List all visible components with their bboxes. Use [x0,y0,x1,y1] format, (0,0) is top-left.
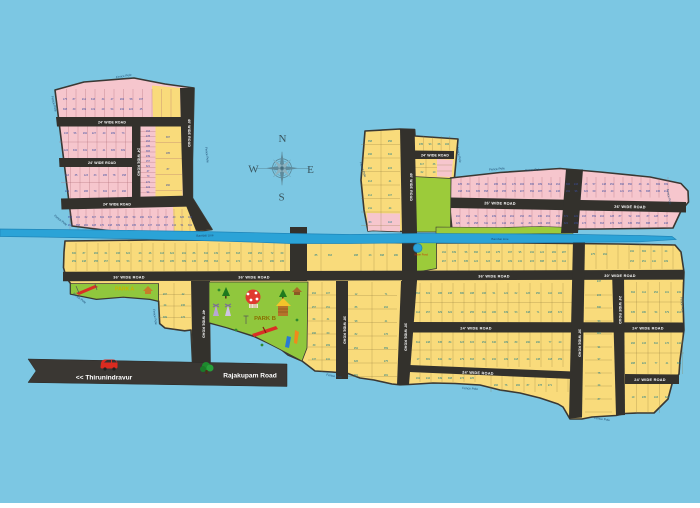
svg-text:388: 388 [540,260,545,263]
svg-text:398: 398 [380,254,385,257]
svg-text:114: 114 [416,311,421,314]
svg-text:346: 346 [492,341,497,344]
svg-text:297: 297 [163,293,168,296]
svg-text:137: 137 [312,358,317,361]
svg-text:282: 282 [552,251,557,254]
svg-text:381: 381 [354,374,359,377]
svg-text:345: 345 [628,222,633,225]
svg-text:225: 225 [458,183,463,186]
svg-text:238: 238 [494,190,499,193]
svg-text:317: 317 [420,163,425,166]
svg-text:191: 191 [566,190,571,193]
svg-text:287: 287 [562,251,567,254]
svg-text:196: 196 [116,252,121,255]
svg-text:158: 158 [122,174,127,177]
svg-text:24' WIDE ROAD: 24' WIDE ROAD [103,202,131,206]
svg-text:335: 335 [631,311,636,314]
svg-text:116: 116 [160,252,165,255]
svg-text:282: 282 [516,384,521,387]
svg-text:264: 264 [466,215,471,218]
svg-text:202: 202 [182,252,187,255]
svg-text:275: 275 [384,360,389,363]
svg-text:152: 152 [556,215,561,218]
svg-text:185: 185 [166,152,171,155]
svg-text:200: 200 [124,216,129,219]
svg-text:121: 121 [620,190,625,193]
svg-text:269: 269 [326,344,331,347]
svg-text:278: 278 [538,384,543,387]
svg-text:176: 176 [384,333,389,336]
svg-text:26' WIDE ROAD: 26' WIDE ROAD [614,205,646,210]
svg-text:210: 210 [456,215,461,218]
svg-text:257: 257 [312,306,317,309]
svg-text:S: S [278,192,284,204]
svg-text:290: 290 [140,216,145,219]
svg-text:232: 232 [677,291,682,294]
svg-text:182: 182 [558,292,563,295]
svg-text:173: 173 [582,222,587,225]
svg-text:109: 109 [664,260,669,263]
svg-text:280: 280 [394,254,399,257]
svg-text:40' WIDE ROAD: 40' WIDE ROAD [409,173,413,201]
svg-text:247: 247 [597,280,602,283]
svg-text:215: 215 [530,260,535,263]
svg-text:241: 241 [326,358,331,361]
svg-text:128: 128 [654,215,659,218]
svg-text:307: 307 [92,216,97,219]
svg-text:136: 136 [656,190,661,193]
svg-text:363: 363 [328,254,333,257]
svg-text:252: 252 [610,183,615,186]
svg-text:274: 274 [236,260,241,263]
svg-text:394: 394 [631,291,636,294]
svg-text:100: 100 [636,215,641,218]
svg-text:250: 250 [536,292,541,295]
svg-text:274: 274 [460,377,465,380]
svg-text:215: 215 [388,167,393,170]
svg-text:315: 315 [470,341,475,344]
svg-text:110: 110 [548,292,553,295]
svg-text:184: 184 [520,183,525,186]
svg-text:257: 257 [426,311,431,314]
svg-text:323: 323 [486,260,491,263]
svg-text:359: 359 [592,215,597,218]
svg-text:308: 308 [448,377,453,380]
svg-text:344: 344 [482,311,487,314]
svg-text:176: 176 [665,342,670,345]
svg-text:236: 236 [181,304,186,307]
svg-text:159: 159 [558,358,563,361]
svg-text:393: 393 [160,260,165,263]
svg-text:324: 324 [170,252,175,255]
svg-text:369: 369 [664,183,669,186]
svg-text:264: 264 [556,183,561,186]
svg-text:326: 326 [180,216,185,219]
svg-text:291: 291 [510,215,515,218]
svg-text:326: 326 [618,222,623,225]
svg-text:176: 176 [181,316,186,319]
svg-text:107: 107 [326,292,331,295]
svg-text:230: 230 [538,215,543,218]
svg-text:212: 212 [82,98,87,101]
svg-text:Bambai Line: Bambai Line [491,237,508,241]
svg-text:192: 192 [630,250,635,253]
svg-text:184: 184 [445,143,450,146]
svg-text:191: 191 [416,377,421,380]
svg-text:337: 337 [108,216,113,219]
svg-text:145: 145 [192,260,197,263]
svg-text:170: 170 [512,183,517,186]
svg-text:380: 380 [460,292,465,295]
svg-text:153: 153 [630,260,635,263]
svg-text:262: 262 [603,253,608,256]
svg-text:24' WIDE ROAD: 24' WIDE ROAD [98,121,126,125]
svg-text:374: 374 [148,216,153,219]
svg-text:306: 306 [566,183,571,186]
svg-text:366: 366 [474,251,479,254]
svg-text:329: 329 [438,311,443,314]
svg-text:309: 309 [121,149,126,152]
svg-text:119: 119 [91,108,96,111]
svg-text:143: 143 [486,251,491,254]
svg-text:381: 381 [426,358,431,361]
svg-text:367: 367 [164,224,169,227]
svg-text:252: 252 [482,341,487,344]
svg-text:E: E [307,164,314,176]
svg-text:40' WIDE ROAD: 40' WIDE ROAD [202,310,206,338]
svg-text:102: 102 [76,216,81,219]
svg-text:255: 255 [94,260,99,263]
svg-text:324: 324 [126,252,131,255]
svg-text:24' WIDE ROAD: 24' WIDE ROAD [88,161,116,165]
svg-text:178: 178 [452,260,457,263]
svg-text:36' WIDE ROAD: 36' WIDE ROAD [113,276,145,280]
svg-text:331: 331 [83,149,88,152]
svg-text:281: 281 [384,374,389,377]
svg-text:163: 163 [146,130,151,133]
svg-text:175: 175 [63,98,68,101]
svg-text:309: 309 [116,224,121,227]
svg-text:272: 272 [146,181,151,184]
svg-text:348: 348 [526,311,531,314]
svg-text:123: 123 [84,174,89,177]
svg-text:264: 264 [68,224,73,227]
svg-text:288: 288 [354,254,359,257]
svg-text:238: 238 [448,292,453,295]
svg-text:Water Pond: Water Pond [414,253,428,257]
svg-text:36' WIDE ROAD: 36' WIDE ROAD [478,275,510,279]
svg-text:259: 259 [72,260,77,263]
svg-text:157: 157 [146,160,151,163]
svg-text:299: 299 [574,222,579,225]
svg-text:390: 390 [597,306,602,309]
svg-text:321: 321 [146,165,151,168]
svg-text:40' WIDE ROAD: 40' WIDE ROAD [187,119,191,147]
svg-text:288: 288 [631,362,636,365]
svg-text:275: 275 [496,251,501,254]
svg-text:163: 163 [140,224,145,227]
svg-text:248: 248 [82,260,87,263]
svg-text:267: 267 [442,260,447,263]
svg-text:299: 299 [111,132,116,135]
svg-text:142: 142 [652,260,657,263]
svg-text:364: 364 [214,260,219,263]
svg-text:266: 266 [631,342,636,345]
svg-text:358: 358 [368,140,373,143]
svg-text:282: 282 [84,224,89,227]
svg-text:24' WIDE ROAD: 24' WIDE ROAD [136,148,140,176]
svg-text:196: 196 [248,252,253,255]
svg-text:374: 374 [558,311,563,314]
svg-text:115: 115 [188,216,193,219]
svg-text:235: 235 [642,396,647,399]
svg-text:186: 186 [438,292,443,295]
svg-text:296: 296 [368,153,373,156]
svg-text:349: 349 [438,377,443,380]
svg-text:222: 222 [574,215,579,218]
svg-text:263: 263 [146,140,151,143]
svg-text:303: 303 [502,183,507,186]
svg-text:214: 214 [368,194,373,197]
svg-text:359: 359 [68,216,73,219]
svg-text:227: 227 [92,132,97,135]
svg-text:332: 332 [73,149,78,152]
svg-text:366: 366 [620,183,625,186]
svg-text:343: 343 [91,98,96,101]
svg-text:112: 112 [642,291,647,294]
svg-text:W: W [248,163,259,175]
svg-text:352: 352 [476,183,481,186]
svg-text:258: 258 [474,222,479,225]
svg-text:262: 262 [602,190,607,193]
svg-text:243: 243 [574,183,579,186]
svg-text:314: 314 [548,183,553,186]
svg-text:242: 242 [124,224,129,227]
svg-text:208: 208 [548,311,553,314]
svg-text:275: 275 [591,253,596,256]
svg-text:36' WIDE ROAD: 36' WIDE ROAD [343,316,347,344]
svg-text:195: 195 [132,224,137,227]
svg-text:134: 134 [172,224,177,227]
svg-text:109: 109 [508,260,513,263]
svg-text:24' WIDE ROAD: 24' WIDE ROAD [460,327,492,331]
svg-text:152: 152 [520,215,525,218]
svg-text:384: 384 [656,183,661,186]
svg-text:246: 246 [556,190,561,193]
svg-text:<< Thirunindravur: << Thirunindravur [76,375,133,382]
svg-text:118: 118 [514,358,519,361]
svg-text:109: 109 [504,358,509,361]
svg-text:358: 358 [76,224,81,227]
svg-text:254: 254 [654,291,659,294]
svg-text:376: 376 [512,190,517,193]
svg-text:36' WIDE ROAD: 36' WIDE ROAD [238,275,270,279]
svg-text:283: 283 [546,222,551,225]
svg-text:193: 193 [582,215,587,218]
svg-text:187: 187 [538,190,543,193]
svg-text:252: 252 [354,347,359,350]
svg-text:129: 129 [456,222,461,225]
svg-text:224: 224 [65,190,70,193]
svg-text:24' WIDE ROAD: 24' WIDE ROAD [618,296,622,324]
svg-text:215: 215 [502,215,507,218]
svg-text:228: 228 [92,224,97,227]
svg-text:211: 211 [368,207,373,210]
svg-text:106: 106 [116,216,121,219]
svg-text:197: 197 [508,251,513,254]
svg-text:199: 199 [556,222,561,225]
svg-text:358: 358 [484,190,489,193]
svg-text:388: 388 [646,190,651,193]
svg-text:154: 154 [510,222,515,225]
svg-text:116: 116 [388,221,393,224]
svg-text:363: 363 [600,222,605,225]
svg-text:N: N [279,133,287,145]
svg-text:389: 389 [182,260,187,263]
svg-text:284: 284 [120,98,125,101]
svg-text:248: 248 [426,341,431,344]
svg-text:169: 169 [116,260,121,263]
svg-text:151: 151 [326,306,331,309]
svg-text:342: 342 [438,358,443,361]
svg-text:286: 286 [84,190,89,193]
svg-text:296: 296 [312,332,317,335]
svg-text:162: 162 [442,251,447,254]
svg-text:243: 243 [664,222,669,225]
svg-text:189: 189 [504,341,509,344]
svg-text:257: 257 [104,260,109,263]
svg-text:189: 189 [538,183,543,186]
svg-text:167: 167 [112,190,117,193]
svg-text:318: 318 [236,252,241,255]
svg-text:292: 292 [83,132,88,135]
svg-text:305: 305 [476,190,481,193]
svg-text:310: 310 [654,342,659,345]
svg-text:30' WIDE ROAD: 30' WIDE ROAD [604,274,636,278]
svg-text:244: 244 [426,377,431,380]
svg-text:124: 124 [474,260,479,263]
svg-text:155: 155 [502,190,507,193]
svg-text:128: 128 [610,215,615,218]
svg-text:30' WIDE ROAD: 30' WIDE ROAD [404,323,408,351]
svg-text:235: 235 [419,143,424,146]
svg-text:213: 213 [664,190,669,193]
svg-text:339: 339 [452,251,457,254]
svg-text:379: 379 [665,311,670,314]
svg-text:210: 210 [368,167,373,170]
svg-text:356: 356 [636,222,641,225]
svg-text:115: 115 [258,260,263,263]
svg-text:103: 103 [492,222,497,225]
svg-text:347: 347 [664,215,669,218]
svg-text:185: 185 [170,260,175,263]
svg-text:126: 126 [526,292,531,295]
svg-text:196: 196 [482,292,487,295]
svg-text:365: 365 [530,183,535,186]
svg-text:212: 212 [677,311,682,314]
svg-text:334: 334 [204,252,209,255]
svg-text:126: 126 [552,260,557,263]
svg-text:279: 279 [460,358,465,361]
svg-text:302: 302 [100,216,105,219]
svg-text:341: 341 [466,190,471,193]
svg-text:Bambai Line: Bambai Line [196,233,214,238]
svg-text:388: 388 [646,222,651,225]
svg-text:383: 383 [146,150,151,153]
svg-text:323: 323 [460,341,465,344]
svg-text:339: 339 [504,311,509,314]
svg-text:291: 291 [546,215,551,218]
svg-text:137: 137 [148,224,153,227]
svg-text:271: 271 [548,384,553,387]
svg-text:364: 364 [416,292,421,295]
svg-text:256: 256 [388,140,393,143]
svg-text:295: 295 [103,174,108,177]
svg-text:204: 204 [600,215,605,218]
svg-text:188: 188 [470,292,475,295]
svg-text:278: 278 [146,135,151,138]
svg-text:180: 180 [642,311,647,314]
svg-text:294: 294 [312,292,317,295]
svg-text:107: 107 [388,194,393,197]
svg-text:319: 319 [426,292,431,295]
svg-text:284: 284 [94,252,99,255]
svg-text:132: 132 [518,260,523,263]
svg-text:36' WIDE ROAD: 36' WIDE ROAD [578,329,582,357]
svg-text:192: 192 [530,251,535,254]
svg-text:185: 185 [146,145,151,148]
svg-text:290: 290 [526,341,531,344]
svg-text:308: 308 [63,108,68,111]
svg-text:371: 371 [564,215,569,218]
svg-text:312: 312 [416,341,421,344]
svg-text:186: 186 [492,311,497,314]
svg-text:352: 352 [530,190,535,193]
svg-text:335: 335 [464,260,469,263]
svg-text:273: 273 [610,222,615,225]
svg-text:350: 350 [628,183,633,186]
svg-text:142: 142 [677,342,682,345]
svg-text:213: 213 [368,180,373,183]
svg-text:298: 298 [164,216,169,219]
svg-text:388: 388 [677,362,682,365]
svg-text:124: 124 [540,251,545,254]
svg-text:24' WIDE ROAD: 24' WIDE ROAD [421,154,449,158]
svg-text:311: 311 [484,222,489,225]
svg-text:122: 122 [504,292,509,295]
svg-text:139: 139 [214,252,219,255]
svg-text:26' WIDE ROAD: 26' WIDE ROAD [484,201,516,206]
svg-text:207: 207 [520,190,525,193]
svg-text:224: 224 [538,222,543,225]
svg-text:133: 133 [642,342,647,345]
svg-text:322: 322 [448,311,453,314]
svg-text:197: 197 [139,98,144,101]
svg-text:102: 102 [156,224,161,227]
svg-text:103: 103 [654,396,659,399]
svg-text:381: 381 [597,332,602,335]
svg-text:296: 296 [122,190,127,193]
svg-text:294: 294 [384,306,389,309]
svg-text:101: 101 [665,291,670,294]
svg-text:322: 322 [584,190,589,193]
svg-text:232: 232 [120,108,125,111]
svg-text:280: 280 [270,260,275,263]
svg-text:24' WIDE ROAD: 24' WIDE ROAD [632,326,664,330]
svg-text:239: 239 [492,215,497,218]
svg-text:157: 157 [628,190,633,193]
svg-text:168: 168 [458,190,463,193]
